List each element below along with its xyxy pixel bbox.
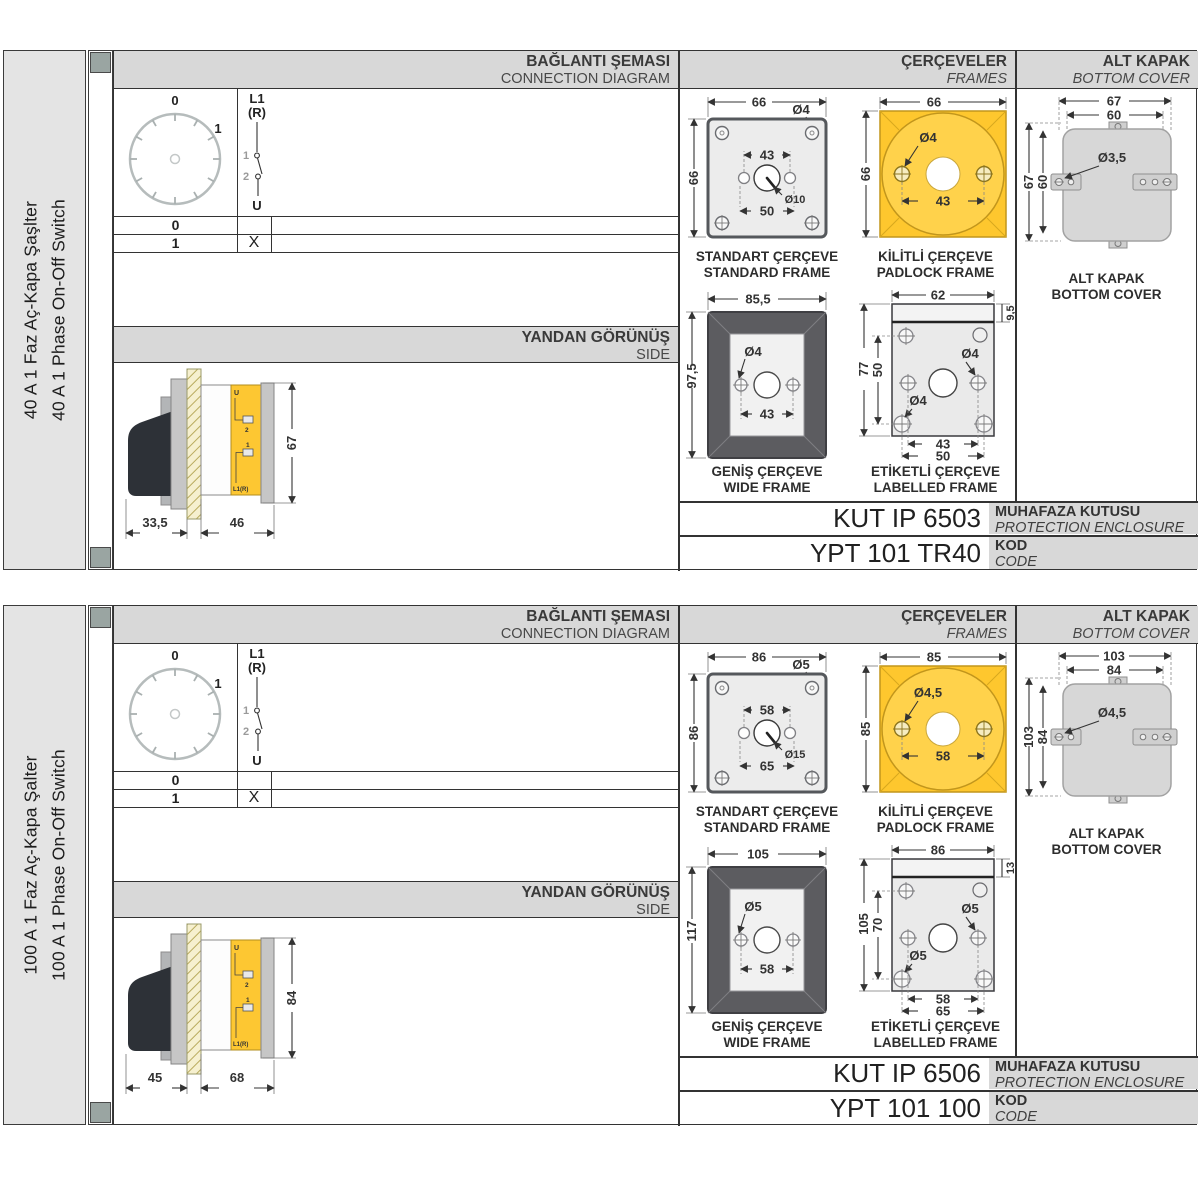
enclosure-label: MUHAFAZA KUTUSU PROTECTION ENCLOSURE: [989, 503, 1198, 534]
terminal-2: 2: [245, 427, 249, 434]
switch-contact-1: 1: [243, 150, 249, 162]
position-row-0-mark: [237, 216, 271, 234]
dim-h-outer: 103: [1021, 726, 1036, 748]
frames-header-en: FRAMES: [678, 71, 1007, 87]
divider-line: [678, 1056, 1198, 1058]
enclosure-label-en: PROTECTION ENCLOSURE: [995, 521, 1192, 536]
caption-en: WIDE FRAME: [678, 480, 856, 496]
divider-line: [114, 771, 678, 772]
cover-header-tr: ALT KAPAK: [1015, 608, 1190, 626]
dim-hole-corner: Ø5: [909, 948, 926, 963]
cover-header-en: BOTTOM COVER: [1015, 71, 1190, 87]
dim-inner-height: 70: [870, 918, 885, 932]
frames-header: ÇERÇEVELER FRAMES: [678, 606, 1015, 644]
switch-terminal-top2: (R): [248, 660, 266, 675]
spine-column: [88, 50, 113, 570]
terminal-2: 2: [245, 982, 249, 989]
position-row-0-label: 0: [114, 771, 237, 789]
switch-terminal-bottom: U: [252, 198, 261, 213]
dim-span: 43: [936, 194, 950, 209]
side-view-header-en: SIDE: [114, 347, 670, 363]
switch-terminal-top: L1: [249, 646, 264, 661]
dim-hole-corner: Ø4: [909, 393, 927, 408]
divider-line: [114, 234, 678, 235]
catalog-row-40a: 40 A 1 Faz Aç-Kapa Şaşlter 40 A 1 Phase …: [0, 50, 1200, 570]
standard-frame-cell: 66 Ø4 43 Ø10: [678, 89, 856, 286]
code-label-en: CODE: [995, 555, 1192, 570]
content-panel: BAĞLANTI ŞEMASI CONNECTION DIAGRAM ÇERÇE…: [113, 50, 1197, 570]
standard-frame-caption: STANDART ÇERÇEVE STANDARD FRAME: [678, 804, 856, 836]
caption-tr: STANDART ÇERÇEVE: [678, 804, 856, 820]
labelled-frame-drawing: 62 9,5 Ø4 Ø4: [856, 286, 1015, 464]
dim-height: 66: [686, 171, 701, 185]
dim-h-inner: 60: [1035, 175, 1050, 189]
enclosure-label-tr: MUHAFAZA KUTUSU: [995, 503, 1192, 521]
connection-header-tr: BAĞLANTI ŞEMASI: [114, 608, 670, 626]
caption-en: BOTTOM COVER: [1015, 842, 1198, 858]
padlock-frame-drawing: 85 85 Ø4,5 58: [856, 644, 1015, 804]
bottom-cover-caption: ALT KAPAK BOTTOM COVER: [1015, 271, 1198, 303]
dim-strip: 13: [1005, 862, 1015, 874]
connection-header: BAĞLANTI ŞEMASI CONNECTION DIAGRAM: [114, 606, 678, 644]
dim-span: 58: [936, 749, 950, 764]
dim-hole: Ø4,5: [1098, 705, 1126, 720]
dim-depth-front: 45: [148, 1070, 162, 1085]
caption-en: PADLOCK FRAME: [856, 265, 1015, 281]
cover-header-tr: ALT KAPAK: [1015, 53, 1190, 71]
rotary-dial-diagram: 0 1: [114, 89, 237, 216]
dim-center: Ø15: [785, 749, 806, 761]
dim-width: 85,5: [745, 292, 770, 307]
dim-height: 67: [284, 436, 299, 450]
connection-header-tr: BAĞLANTI ŞEMASI: [114, 53, 670, 71]
terminal-u: U: [234, 390, 239, 397]
bottom-cover-drawing: 103 84 103 84 Ø: [1015, 644, 1198, 820]
terminal-l1r: L1(R): [233, 487, 248, 493]
caption-en: LABELLED FRAME: [856, 480, 1015, 496]
wide-frame-drawing: 105 117 Ø5 58: [678, 841, 856, 1019]
mounting-panel-hatch: [187, 369, 201, 519]
dim-width: 62: [931, 288, 945, 303]
wide-frame-caption: GENİŞ ÇERÇEVE WIDE FRAME: [678, 464, 856, 496]
dim-width: 105: [747, 847, 769, 862]
dim-hole: Ø3,5: [1098, 150, 1126, 165]
divider-line: [114, 789, 678, 790]
product-code-value: YPT 101 100: [680, 1092, 989, 1124]
dim-hole-mid: Ø4: [961, 346, 979, 361]
dim-outer: 50: [760, 204, 774, 219]
wide-frame-caption: GENİŞ ÇERÇEVE WIDE FRAME: [678, 1019, 856, 1051]
caption-en: BOTTOM COVER: [1015, 287, 1198, 303]
position-row-1-label: 1: [114, 789, 237, 807]
spine-mark-bottom: [90, 547, 111, 568]
sidebar: 100 A 1 Faz Aç-Kapa Şalter 100 A 1 Phase…: [3, 605, 86, 1125]
dim-height: 66: [858, 167, 873, 181]
padlock-frame-cell: 66 66 Ø4 43: [856, 89, 1015, 286]
standard-frame-caption: STANDART ÇERÇEVE STANDARD FRAME: [678, 249, 856, 281]
dim-width: 85: [927, 650, 941, 665]
dim-inner: 58: [760, 703, 774, 718]
dim-hole: Ø4,5: [914, 685, 942, 700]
divider-line: [1015, 51, 1017, 501]
side-view-header-tr: YANDAN GÖRÜNÜŞ: [114, 884, 670, 902]
dim-height: 77: [856, 362, 871, 376]
caption-tr: STANDART ÇERÇEVE: [678, 249, 856, 265]
content-panel: BAĞLANTI ŞEMASI CONNECTION DIAGRAM ÇERÇE…: [113, 605, 1197, 1125]
side-view-header-en: SIDE: [114, 902, 670, 918]
product-title-en: 40 A 1 Phase On-Off Switch: [48, 199, 69, 421]
side-view-header-tr: YANDAN GÖRÜNÜŞ: [114, 329, 670, 347]
dim-height: 105: [856, 913, 871, 935]
dim-span: 58: [760, 962, 774, 977]
bottom-cover-cell: 103 84 103 84 Ø: [1015, 644, 1198, 1056]
divider-line: [114, 252, 678, 253]
frames-header-tr: ÇERÇEVELER: [678, 53, 1007, 71]
padlock-frame-cell: 85 85 Ø4,5 58: [856, 644, 1015, 841]
handle-silhouette: [128, 411, 173, 496]
caption-en: STANDARD FRAME: [678, 820, 856, 836]
switch-terminal-top: L1: [249, 91, 264, 106]
code-label-tr: KOD: [995, 1092, 1192, 1110]
labelled-frame-cell: 86 13 Ø5 Ø5: [856, 841, 1015, 1056]
switch-contact-1: 1: [243, 705, 249, 717]
labelled-frame-caption: ETİKETLİ ÇERÇEVE LABELLED FRAME: [856, 464, 1015, 496]
product-code-label: KOD CODE: [989, 537, 1198, 569]
connection-header-en: CONNECTION DIAGRAM: [114, 71, 670, 87]
mounting-panel-hatch: [187, 924, 201, 1074]
product-title-en: 100 A 1 Phase On-Off Switch: [48, 749, 69, 981]
spine-mark-top: [90, 607, 111, 628]
caption-tr: KİLİTLİ ÇERÇEVE: [856, 804, 1015, 820]
enclosure-label: MUHAFAZA KUTUSU PROTECTION ENCLOSURE: [989, 1058, 1198, 1089]
dim-w-outer: 67: [1107, 94, 1121, 109]
caption-en: WIDE FRAME: [678, 1035, 856, 1051]
connection-header-en: CONNECTION DIAGRAM: [114, 626, 670, 642]
frames-header-tr: ÇERÇEVELER: [678, 608, 1007, 626]
caption-tr: ETİKETLİ ÇERÇEVE: [856, 464, 1015, 480]
spine-mark-top: [90, 52, 111, 73]
dim-width: 86: [931, 843, 945, 858]
dim-height: 97,5: [684, 363, 699, 388]
dim-height: 86: [686, 726, 701, 740]
standard-frame-cell: 86 Ø5 58 Ø15: [678, 644, 856, 841]
terminal-1: 1: [246, 997, 250, 1004]
divider-line: [678, 501, 1198, 503]
dim-center: Ø10: [785, 194, 806, 206]
spine-column: [88, 605, 113, 1125]
padlock-frame-caption: KİLİTLİ ÇERÇEVE PADLOCK FRAME: [856, 804, 1015, 836]
dim-hole-mid: Ø5: [961, 901, 978, 916]
dial-pos-1: 1: [214, 676, 221, 691]
wide-frame-cell: 85,5 97,5 Ø4 43: [678, 286, 856, 501]
bottom-cover-drawing: 67 60 67 60 Ø3,: [1015, 89, 1198, 265]
product-code-value: YPT 101 TR40: [680, 537, 989, 569]
bottom-cover-caption: ALT KAPAK BOTTOM COVER: [1015, 826, 1198, 858]
wide-frame-drawing: 85,5 97,5 Ø4 43: [678, 286, 856, 464]
standard-frame-drawing: 86 Ø5 58 Ø15: [678, 644, 856, 804]
padlock-frame-drawing: 66 66 Ø4 43: [856, 89, 1015, 249]
labelled-frame-cell: 62 9,5 Ø4 Ø4: [856, 286, 1015, 501]
product-title: 40 A 1 Faz Aç-Kapa Şaşlter 40 A 1 Phase …: [20, 199, 69, 421]
divider-line: [114, 807, 678, 808]
cover-header-en: BOTTOM COVER: [1015, 626, 1190, 642]
caption-tr: ETİKETLİ ÇERÇEVE: [856, 1019, 1015, 1035]
frames-header: ÇERÇEVELER FRAMES: [678, 51, 1015, 89]
handle-silhouette: [128, 966, 173, 1051]
position-row-1-mark: X: [237, 234, 271, 252]
dim-inner: 43: [760, 148, 774, 163]
position-row-0-label: 0: [114, 216, 237, 234]
code-label-en: CODE: [995, 1110, 1192, 1125]
caption-en: STANDARD FRAME: [678, 265, 856, 281]
terminal-label: [231, 385, 261, 495]
dim-hole: Ø5: [744, 899, 761, 914]
dim-w-outer: 103: [1103, 649, 1125, 664]
side-view-drawing: U 2 1 L1(R) 67 33,5 46: [114, 363, 678, 571]
dim-span: 43: [760, 407, 774, 422]
dim-inner-height: 50: [870, 363, 885, 377]
switch-contact-2: 2: [243, 171, 249, 183]
terminal-label: [231, 940, 261, 1050]
enclosure-label-tr: MUHAFAZA KUTUSU: [995, 1058, 1192, 1076]
dim-span-outer: 50: [936, 449, 950, 464]
position-row-1-label: 1: [114, 234, 237, 252]
dial-pos-0: 0: [171, 93, 178, 108]
position-row-0-mark: [237, 771, 271, 789]
divider-line: [1015, 606, 1017, 1056]
divider-line: [678, 51, 680, 571]
divider-line: [237, 644, 238, 807]
switch-terminal-top2: (R): [248, 105, 266, 120]
dial-pos-0: 0: [171, 648, 178, 663]
dim-hole: Ø4: [792, 102, 810, 117]
dim-w-inner: 60: [1107, 108, 1121, 123]
code-label-tr: KOD: [995, 537, 1192, 555]
bottom-cover-cell: 67 60 67 60 Ø3,: [1015, 89, 1198, 501]
dim-width: 66: [752, 95, 766, 110]
caption-tr: GENİŞ ÇERÇEVE: [678, 1019, 856, 1035]
product-title-tr: 100 A 1 Faz Aç-Kapa Şalter: [20, 749, 41, 981]
dim-width: 66: [927, 95, 941, 110]
product-title-tr: 40 A 1 Faz Aç-Kapa Şaşlter: [20, 199, 41, 421]
wide-frame-cell: 105 117 Ø5 58: [678, 841, 856, 1056]
dim-depth-body: 46: [230, 515, 244, 530]
spine-mark-bottom: [90, 1102, 111, 1123]
divider-line: [678, 535, 1198, 537]
cover-header: ALT KAPAK BOTTOM COVER: [1015, 51, 1198, 89]
dim-hole: Ø5: [792, 657, 809, 672]
terminal-1: 1: [246, 442, 250, 449]
cover-header: ALT KAPAK BOTTOM COVER: [1015, 606, 1198, 644]
dim-span-outer: 65: [936, 1004, 950, 1019]
padlock-frame-caption: KİLİTLİ ÇERÇEVE PADLOCK FRAME: [856, 249, 1015, 281]
terminal-u: U: [234, 945, 239, 952]
terminal-l1r: L1(R): [233, 1042, 248, 1048]
enclosure-code-value: KUT IP 6503: [680, 503, 989, 534]
product-code-label: KOD CODE: [989, 1092, 1198, 1124]
dim-depth-front: 33,5: [142, 515, 167, 530]
frames-header-en: FRAMES: [678, 626, 1007, 642]
dim-depth-body: 68: [230, 1070, 244, 1085]
switch-symbol-diagram: L1 (R) 1 2 U: [237, 644, 317, 771]
caption-tr: GENİŞ ÇERÇEVE: [678, 464, 856, 480]
enclosure-label-en: PROTECTION ENCLOSURE: [995, 1076, 1192, 1091]
divider-line: [114, 216, 678, 217]
divider-line: [678, 606, 680, 1126]
standard-frame-drawing: 66 Ø4 43 Ø10: [678, 89, 856, 249]
labelled-frame-caption: ETİKETLİ ÇERÇEVE LABELLED FRAME: [856, 1019, 1015, 1051]
switch-contact-2: 2: [243, 726, 249, 738]
side-view-header: YANDAN GÖRÜNÜŞ SIDE: [114, 326, 678, 363]
dim-h-inner: 84: [1035, 729, 1050, 744]
caption-en: LABELLED FRAME: [856, 1035, 1015, 1051]
connection-header: BAĞLANTI ŞEMASI CONNECTION DIAGRAM: [114, 51, 678, 89]
divider-line: [678, 1090, 1198, 1092]
dim-width: 86: [752, 650, 766, 665]
side-view-drawing: U 2 1 L1(R) 84 45 68: [114, 918, 678, 1126]
rotary-dial-diagram: 0 1: [114, 644, 237, 771]
dim-w-inner: 84: [1107, 663, 1122, 678]
caption-en: PADLOCK FRAME: [856, 820, 1015, 836]
product-title: 100 A 1 Faz Aç-Kapa Şalter 100 A 1 Phase…: [20, 749, 69, 981]
catalog-row-100a: 100 A 1 Faz Aç-Kapa Şalter 100 A 1 Phase…: [0, 605, 1200, 1125]
position-row-1-mark: X: [237, 789, 271, 807]
dim-strip: 9,5: [1005, 305, 1015, 320]
dial-pos-1: 1: [214, 121, 221, 136]
caption-tr: KİLİTLİ ÇERÇEVE: [856, 249, 1015, 265]
switch-symbol-diagram: L1 (R) 1 2 U: [237, 89, 317, 216]
labelled-frame-drawing: 86 13 Ø5 Ø5: [856, 841, 1015, 1019]
dim-hole: Ø4: [744, 344, 762, 359]
dim-height: 84: [284, 990, 299, 1005]
enclosure-code-value: KUT IP 6506: [680, 1058, 989, 1089]
caption-tr: ALT KAPAK: [1015, 826, 1198, 842]
divider-line: [237, 89, 238, 252]
sidebar: 40 A 1 Faz Aç-Kapa Şaşlter 40 A 1 Phase …: [3, 50, 86, 570]
side-view-header: YANDAN GÖRÜNÜŞ SIDE: [114, 881, 678, 918]
dim-hole: Ø4: [919, 130, 937, 145]
caption-tr: ALT KAPAK: [1015, 271, 1198, 287]
dim-height: 85: [858, 722, 873, 736]
dim-h-outer: 67: [1021, 175, 1036, 189]
switch-terminal-bottom: U: [252, 753, 261, 768]
dim-height: 117: [684, 921, 699, 942]
dim-outer: 65: [760, 759, 774, 774]
